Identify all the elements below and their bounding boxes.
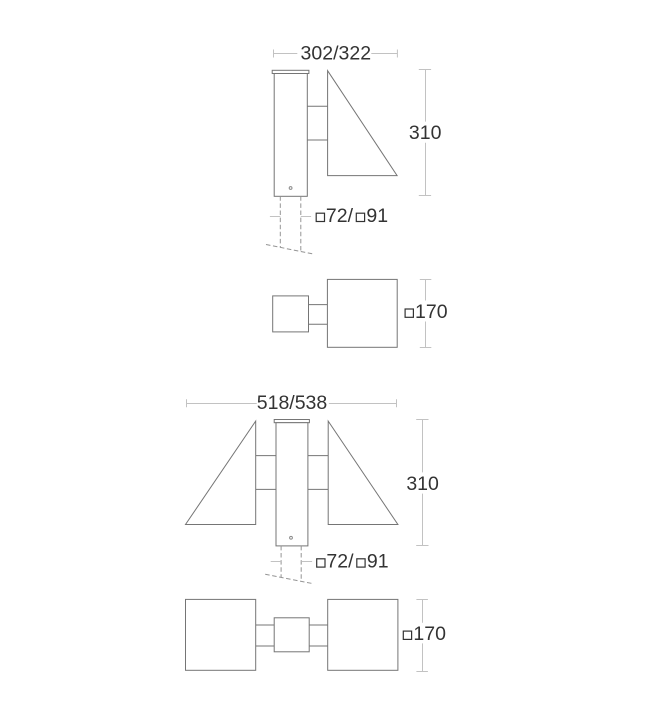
svg-text:72/: 72/ — [326, 205, 354, 227]
svg-text:310: 310 — [406, 473, 439, 495]
svg-text:302/322: 302/322 — [301, 42, 372, 64]
svg-text:170: 170 — [413, 623, 446, 645]
svg-text:72/: 72/ — [326, 550, 354, 572]
svg-text:91: 91 — [367, 550, 389, 572]
svg-text:91: 91 — [366, 205, 388, 227]
svg-text:170: 170 — [415, 301, 448, 323]
svg-text:518/538: 518/538 — [257, 392, 328, 414]
svg-text:310: 310 — [409, 122, 442, 144]
